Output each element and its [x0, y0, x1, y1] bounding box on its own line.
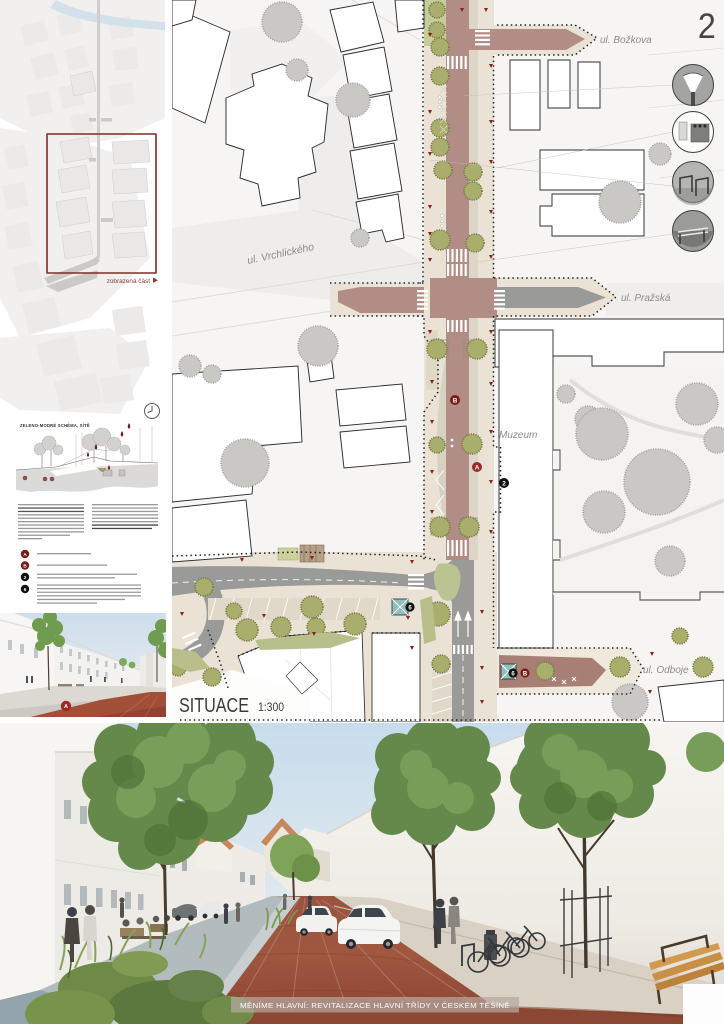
- svg-text:B: B: [453, 397, 458, 404]
- svg-text:A: A: [475, 464, 480, 471]
- svg-text:1:300: 1:300: [258, 702, 284, 714]
- svg-text:2: 2: [502, 480, 506, 487]
- svg-text:6: 6: [24, 587, 27, 592]
- svg-text:B: B: [523, 671, 528, 677]
- svg-text:A: A: [64, 704, 68, 710]
- svg-text:ZELENO-MODRÉ SCHÉMA, SÍTĚ: ZELENO-MODRÉ SCHÉMA, SÍTĚ: [20, 423, 90, 428]
- svg-text:zobrazená část: zobrazená část: [107, 278, 151, 285]
- svg-text:Muzeum: Muzeum: [499, 430, 537, 441]
- svg-text:ul. Odboje: ul. Odboje: [643, 665, 689, 676]
- svg-text:ul. Božkova: ul. Božkova: [600, 35, 652, 46]
- svg-text:2: 2: [24, 575, 27, 580]
- svg-text:ul. Pražská: ul. Pražská: [621, 293, 671, 304]
- svg-text:SITUACE: SITUACE: [179, 695, 249, 717]
- svg-text:2: 2: [698, 8, 716, 47]
- svg-text:MĚNÍME HLAVNÍ: REVITALIZACE HL: MĚNÍME HLAVNÍ: REVITALIZACE HLAVNÍ TŘÍDY…: [240, 1001, 510, 1010]
